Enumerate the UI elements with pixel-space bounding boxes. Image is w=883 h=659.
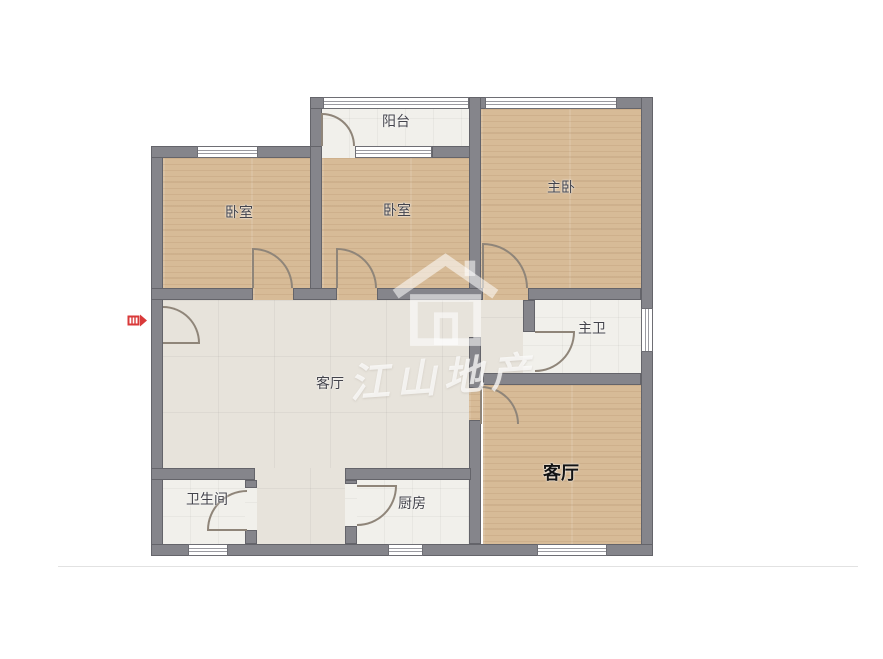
window-bathroom <box>188 544 228 556</box>
wall-segment <box>523 300 535 332</box>
window-master-bathroom <box>641 308 653 352</box>
window-bedroom-left <box>197 146 258 158</box>
door-panel <box>252 248 254 288</box>
room-label-bedroom-middle: 卧室 <box>383 200 411 220</box>
room-label-master-bedroom: 主卧 <box>547 177 575 197</box>
door-threshold <box>345 484 357 526</box>
passage-floor <box>469 300 481 337</box>
door-threshold <box>322 146 355 158</box>
door-threshold <box>483 288 528 300</box>
wall-segment <box>310 146 322 300</box>
wall-segment <box>293 288 337 300</box>
window-balcony-inner <box>355 146 432 158</box>
divider-line <box>58 566 858 567</box>
entrance-arrow-icon <box>127 312 149 329</box>
wall-segment <box>245 480 257 488</box>
entry-door-panel <box>163 342 200 344</box>
room-label-kitchen: 厨房 <box>398 493 426 513</box>
door-panel <box>321 113 323 146</box>
door-panel <box>357 485 397 487</box>
wall-segment <box>377 288 483 300</box>
door-panel <box>336 248 338 288</box>
wall-segment <box>245 530 257 544</box>
wall-segment <box>151 146 163 556</box>
wall-segment <box>469 97 481 300</box>
door-panel <box>482 243 484 288</box>
wall-segment <box>528 288 641 300</box>
window-second-living-room <box>537 544 607 556</box>
wall-segment <box>345 480 357 484</box>
room-label-living-room: 客厅 <box>316 373 344 393</box>
door-threshold <box>337 288 377 300</box>
room-label-bedroom-left: 卧室 <box>225 202 253 222</box>
wall-segment <box>151 468 255 480</box>
door-panel <box>535 331 575 333</box>
room-label-balcony: 阳台 <box>382 111 410 131</box>
room-label-second-living-room: 客厅 <box>543 459 579 485</box>
door-threshold <box>253 288 293 300</box>
wall-segment <box>151 288 253 300</box>
wall-segment <box>345 526 357 544</box>
wall-segment <box>345 468 471 480</box>
room-label-master-bathroom: 主卫 <box>578 318 606 338</box>
floorplan-canvas: 江山地产 卧室 卧室 主卧 阳台 主卫 客厅 卫生间 厨房 客厅 <box>0 0 883 659</box>
corridor-floor <box>255 468 345 544</box>
window-master-bedroom <box>485 97 617 109</box>
room-label-bathroom: 卫生间 <box>186 489 228 509</box>
window-balcony-top <box>323 97 469 109</box>
window-kitchen <box>388 544 423 556</box>
wall-segment <box>469 420 481 544</box>
door-panel <box>207 529 247 531</box>
